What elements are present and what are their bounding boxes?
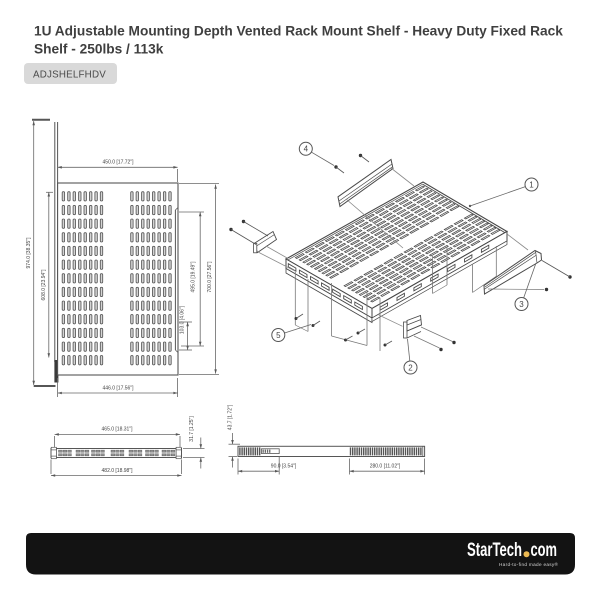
- svg-text:5: 5: [276, 331, 281, 340]
- svg-text:Shelf - 250lbs / 113k: Shelf - 250lbs / 113k: [34, 42, 164, 57]
- svg-text:280.0 [11.02"]: 280.0 [11.02"]: [370, 463, 401, 469]
- svg-text:90.0 [3.54"]: 90.0 [3.54"]: [271, 463, 297, 469]
- svg-text:450.0 [17.72"]: 450.0 [17.72"]: [103, 160, 135, 166]
- svg-text:495.0 [19.49"]: 495.0 [19.49"]: [191, 261, 197, 293]
- svg-text:43.7 [1.72"]: 43.7 [1.72"]: [228, 404, 234, 430]
- svg-text:482.0 [18.98"]: 482.0 [18.98"]: [102, 468, 134, 474]
- svg-text:31.7 [1.25"]: 31.7 [1.25"]: [189, 416, 195, 442]
- svg-text:700.0 [27.56"]: 700.0 [27.56"]: [207, 261, 213, 293]
- svg-text:3: 3: [519, 300, 524, 309]
- svg-text:465.0 [18.31"]: 465.0 [18.31"]: [102, 427, 134, 433]
- svg-text:Hard-to-find made easy®: Hard-to-find made easy®: [499, 561, 559, 567]
- svg-text:608.0 [23.94"]: 608.0 [23.94"]: [41, 269, 47, 301]
- svg-text:4: 4: [304, 145, 309, 154]
- svg-text:974.0 [38.35"]: 974.0 [38.35"]: [26, 237, 32, 269]
- svg-text:ADJSHELFHDV: ADJSHELFHDV: [33, 70, 106, 81]
- svg-text:446.0 [17.56"]: 446.0 [17.56"]: [103, 386, 135, 392]
- svg-text:StarTech: StarTech: [467, 540, 522, 561]
- svg-text:103.0 [4.06"]: 103.0 [4.06"]: [180, 305, 186, 334]
- svg-text:com: com: [531, 540, 558, 561]
- svg-text:2: 2: [408, 363, 413, 372]
- svg-text:1: 1: [529, 180, 534, 189]
- svg-text:1U Adjustable Mounting Depth V: 1U Adjustable Mounting Depth Vented Rack…: [34, 24, 563, 39]
